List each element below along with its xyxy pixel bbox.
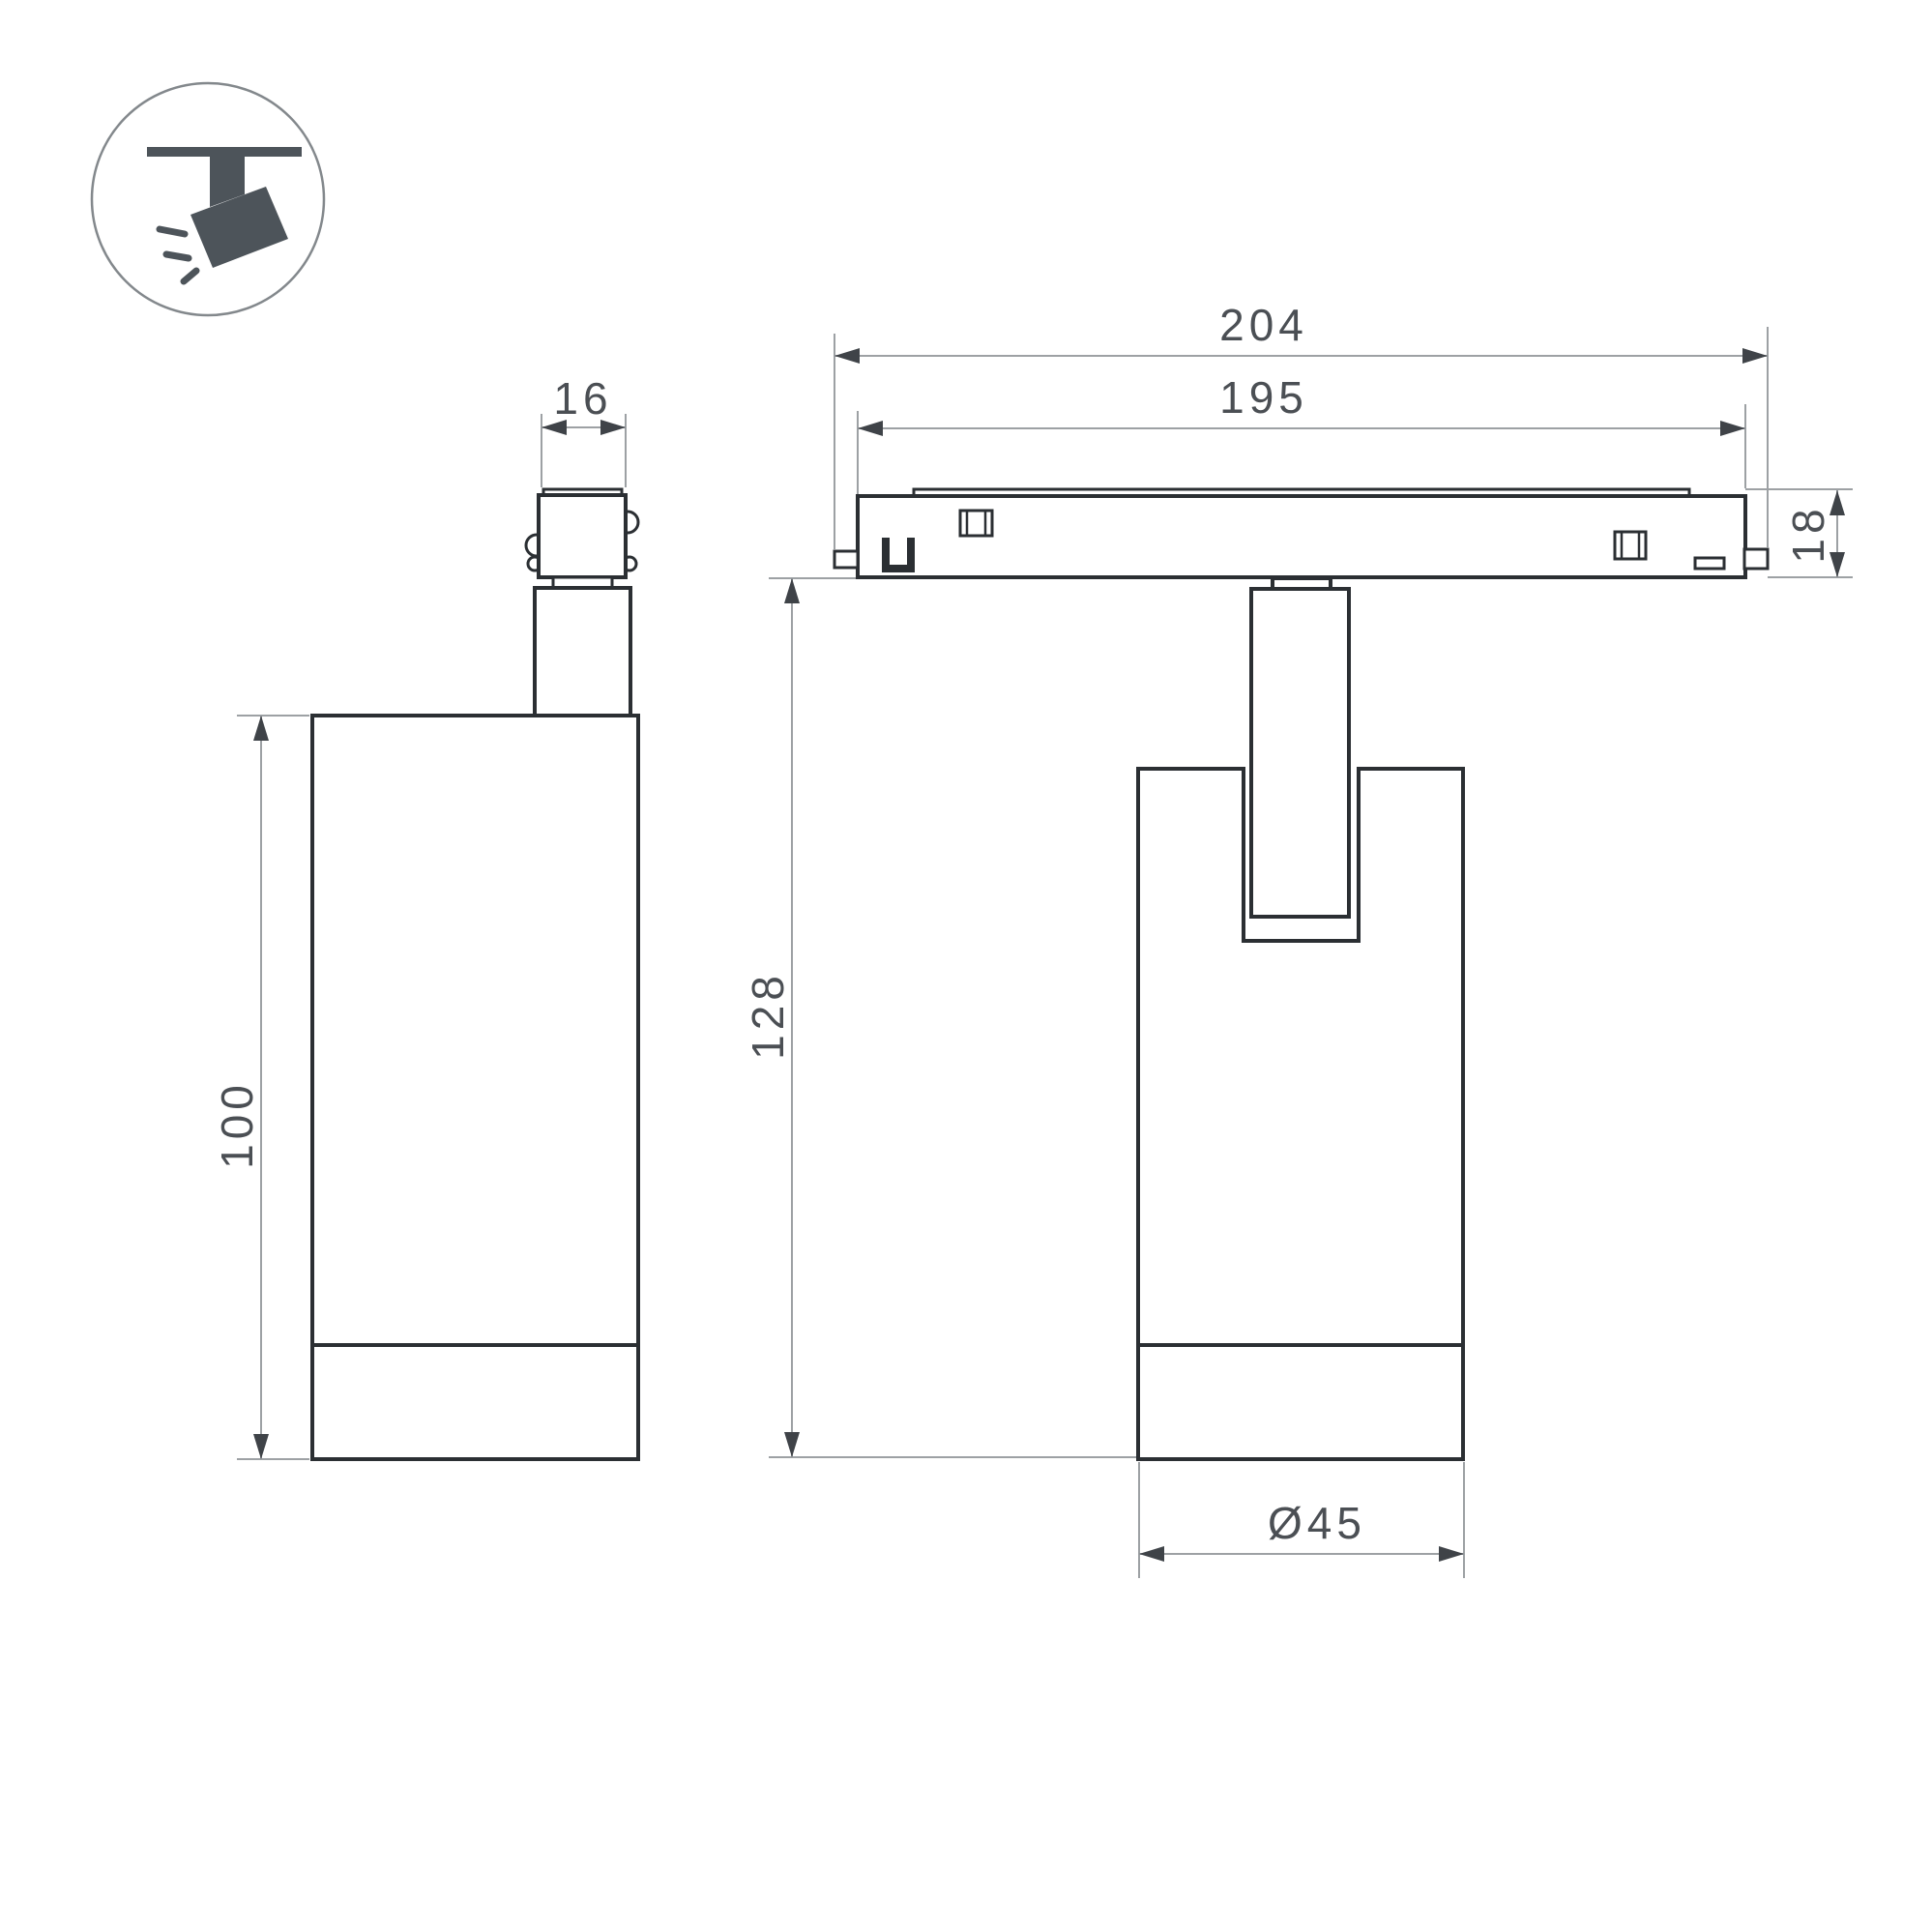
dim-label-195: 195	[1219, 372, 1308, 423]
lamp-housing	[312, 716, 638, 1459]
track-window-left	[960, 511, 992, 536]
track-window-right	[1615, 532, 1646, 559]
icon-track-bar	[147, 147, 302, 157]
stem-front	[1251, 589, 1349, 917]
dim-label-d45: Ø45	[1268, 1498, 1366, 1548]
track-end-tab-right	[1744, 549, 1768, 569]
track-spotlight-icon	[92, 83, 324, 315]
track-slot-detail	[1695, 558, 1724, 569]
dim-label-16: 16	[553, 373, 612, 424]
dimension-connector-width: 16	[542, 373, 626, 487]
stem	[535, 588, 630, 716]
dimension-housing-height: 100	[212, 716, 309, 1459]
dim-label-204: 204	[1219, 300, 1308, 350]
dim-label-100: 100	[212, 1080, 262, 1169]
dimension-track-visible-length: 195	[858, 372, 1745, 494]
dimension-overall-drop-height: 128	[743, 578, 1136, 1457]
dimension-drawing-canvas: 16 204 195 18 100 128 Ø45	[0, 0, 1932, 1932]
dimension-housing-diameter: Ø45	[1139, 1462, 1464, 1578]
technical-drawing-page: 16 204 195 18 100 128 Ø45	[0, 0, 1932, 1932]
icon-circle-border	[92, 83, 324, 315]
front-view	[834, 489, 1768, 1459]
track-connector	[539, 495, 626, 577]
track-end-tab-left	[834, 551, 858, 568]
dim-label-18: 18	[1783, 504, 1833, 563]
side-view	[312, 489, 638, 1459]
dim-label-128: 128	[743, 971, 793, 1060]
